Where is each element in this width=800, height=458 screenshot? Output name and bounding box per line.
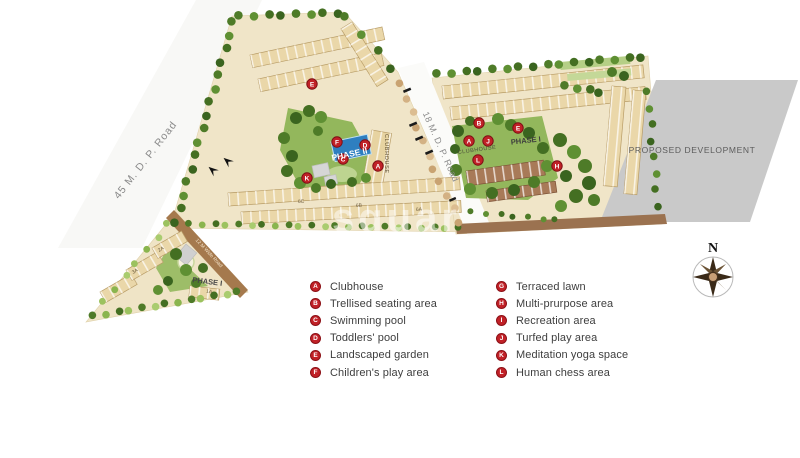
tree-icon — [161, 300, 169, 308]
tree-icon — [174, 299, 182, 307]
map-marker-letter: F — [335, 139, 339, 146]
tree-icon — [179, 192, 188, 201]
legend: A Clubhouse B Trellised seating area C S… — [310, 278, 628, 381]
tree-icon — [281, 165, 293, 177]
tree-icon — [156, 234, 163, 241]
tree-icon — [636, 53, 645, 62]
legend-marker-b-icon: B — [310, 298, 321, 309]
compass-north-label: N — [708, 241, 718, 256]
tree-icon — [585, 58, 594, 67]
tree-icon — [116, 308, 124, 316]
tree-icon — [276, 11, 285, 20]
tree-icon — [509, 214, 515, 220]
legend-marker-a-icon: A — [310, 281, 321, 292]
phase2-clubhouse-label: CLUBHOUSE — [383, 134, 389, 174]
tree-icon — [313, 126, 323, 136]
watermark: squar — [332, 196, 461, 240]
map-marker-letter: E — [310, 81, 315, 88]
tree-icon — [555, 200, 567, 212]
legend-item: G Terraced lawn — [496, 278, 628, 295]
tree-icon — [235, 221, 242, 228]
legend-marker-c-icon: C — [310, 315, 321, 326]
legend-item-label: Terraced lawn — [516, 281, 586, 293]
tree-icon — [278, 132, 290, 144]
tree-icon — [646, 105, 654, 113]
tree-icon — [204, 97, 213, 106]
tree-icon — [213, 220, 220, 227]
tree-icon — [386, 64, 395, 73]
tree-icon — [347, 177, 357, 187]
tree-icon — [131, 260, 138, 267]
tree-icon — [311, 183, 321, 193]
tree-icon — [651, 185, 659, 193]
tree-icon — [643, 88, 651, 96]
tree-icon — [249, 222, 256, 229]
tree-icon — [163, 220, 170, 227]
legend-column-2: G Terraced lawn H Multi-prurpose area I … — [496, 278, 628, 381]
tree-icon — [649, 120, 657, 128]
map-marker-letter: H — [555, 163, 560, 170]
tree-icon — [198, 263, 208, 273]
legend-item-label: Human chess area — [516, 367, 610, 379]
legend-marker-i-icon: I — [496, 315, 507, 326]
tree-icon — [340, 12, 349, 21]
tree-icon — [473, 67, 482, 76]
tree-icon — [191, 150, 200, 159]
map-marker-letter: J — [486, 138, 490, 145]
tree-icon — [573, 84, 582, 93]
tree-icon — [654, 203, 662, 211]
legend-item: D Toddlers' pool — [310, 330, 496, 347]
map-marker-letter: L — [476, 157, 480, 164]
tree-icon — [199, 222, 206, 229]
tree-icon — [177, 204, 186, 213]
tree-icon — [569, 189, 583, 203]
site-plan-page: EFDCAKBAJLEH 45 M. D. P. Road 18 M. D. P… — [0, 0, 800, 458]
tree-icon — [143, 246, 150, 253]
tree-icon — [170, 248, 182, 260]
tree-icon — [594, 88, 603, 97]
tree-icon — [326, 179, 336, 189]
tree-icon — [286, 150, 298, 162]
legend-item: K Meditation yoga space — [496, 347, 628, 364]
tree-icon — [211, 85, 220, 94]
tree-icon — [89, 312, 97, 320]
tree-icon — [163, 276, 173, 286]
tree-icon — [567, 145, 581, 159]
tree-icon — [653, 170, 661, 178]
tree-icon — [555, 60, 564, 69]
map-marker-letter: A — [467, 138, 472, 145]
legend-marker-f-icon: F — [310, 367, 321, 378]
legend-marker-g-icon: G — [496, 281, 507, 292]
legend-item: J Turfed play area — [496, 330, 628, 347]
legend-item-label: Swimming pool — [330, 315, 406, 327]
tree-icon — [170, 218, 179, 227]
tree-icon — [483, 211, 489, 217]
tree-icon — [225, 32, 234, 41]
tree-icon — [514, 62, 523, 71]
legend-item: L Human chess area — [496, 364, 628, 381]
tree-icon — [234, 11, 243, 20]
tree-icon — [193, 138, 202, 147]
tree-icon — [265, 10, 274, 19]
legend-item: A Clubhouse — [310, 278, 496, 295]
tree-icon — [447, 69, 456, 78]
tree-icon — [486, 187, 498, 199]
tree-icon — [214, 70, 223, 79]
tree-icon — [222, 222, 229, 229]
tree-icon — [499, 211, 505, 217]
map-marker-letter: K — [305, 175, 310, 182]
tree-icon — [452, 125, 464, 137]
tree-icon — [303, 105, 315, 117]
tree-icon — [435, 178, 443, 186]
compass-icon — [693, 257, 733, 297]
tree-icon — [607, 67, 617, 77]
tree-icon — [322, 223, 329, 230]
legend-item: I Recreation area — [496, 312, 628, 329]
legend-item: F Children's play area — [310, 364, 496, 381]
legend-marker-h-icon: H — [496, 298, 507, 309]
tree-icon — [290, 112, 302, 124]
tree-icon — [410, 108, 418, 116]
map-marker-letter: A — [376, 163, 381, 170]
legend-marker-l-icon: L — [496, 367, 507, 378]
tree-icon — [307, 10, 316, 19]
tree-icon — [588, 194, 600, 206]
tree-icon — [200, 124, 209, 133]
tree-icon — [258, 221, 265, 228]
tree-icon — [488, 65, 497, 74]
legend-item: E Landscaped garden — [310, 347, 496, 364]
tree-icon — [125, 307, 133, 315]
tree-icon — [227, 17, 236, 26]
tree-icon — [102, 311, 110, 319]
tree-icon — [582, 176, 596, 190]
tree-icon — [233, 288, 241, 296]
tree-icon — [570, 58, 579, 67]
tree-icon — [403, 95, 411, 103]
tree-icon — [111, 286, 118, 293]
tree-icon — [202, 112, 211, 121]
tree-icon — [124, 272, 131, 279]
legend-item-label: Recreation area — [516, 315, 596, 327]
legend-item: C Swimming pool — [310, 312, 496, 329]
legend-marker-d-icon: D — [310, 333, 321, 344]
tree-icon — [508, 184, 520, 196]
tree-icon — [197, 295, 205, 303]
legend-marker-k-icon: K — [496, 350, 507, 361]
tree-icon — [374, 46, 383, 55]
tree-icon — [529, 63, 538, 72]
legend-item: H Multi-prurpose area — [496, 295, 628, 312]
tree-icon — [551, 216, 557, 222]
tree-icon — [465, 116, 475, 126]
tree-icon — [180, 264, 192, 276]
legend-item: B Trellised seating area — [310, 295, 496, 312]
legend-item-label: Meditation yoga space — [516, 349, 628, 361]
tree-icon — [541, 216, 547, 222]
tree-icon — [586, 85, 595, 94]
tree-icon — [153, 285, 163, 295]
tree-icon — [626, 53, 635, 62]
tree-icon — [611, 56, 620, 65]
tree-icon — [553, 133, 567, 147]
tree-icon — [595, 55, 604, 64]
tree-icon — [528, 176, 540, 188]
legend-marker-j-icon: J — [496, 333, 507, 344]
tree-icon — [560, 170, 572, 182]
legend-item-label: Trellised seating area — [330, 298, 437, 310]
tree-icon — [318, 8, 327, 17]
tree-icon — [544, 60, 553, 69]
tree-icon — [295, 223, 302, 230]
tree-icon — [619, 71, 629, 81]
tree-icon — [315, 111, 327, 123]
map-marker-letter: E — [516, 125, 521, 132]
tree-icon — [182, 177, 191, 186]
tree-icon — [525, 214, 531, 220]
tree-icon — [286, 221, 293, 228]
map-marker-letter: B — [477, 120, 482, 127]
tree-icon — [152, 303, 160, 311]
tree-icon — [188, 296, 196, 304]
legend-item-label: Multi-prurpose area — [516, 298, 613, 310]
tree-icon — [361, 173, 371, 183]
tree-icon — [464, 183, 476, 195]
tree-icon — [503, 65, 512, 74]
tree-icon — [189, 165, 198, 174]
tree-icon — [537, 142, 549, 154]
legend-item-label: Clubhouse — [330, 281, 384, 293]
tree-icon — [224, 291, 232, 299]
legend-marker-e-icon: E — [310, 350, 321, 361]
site-map: EFDCAKBAJLEH 45 M. D. P. Road 18 M. D. P… — [0, 0, 800, 458]
legend-item-label: Turfed play area — [516, 332, 597, 344]
tree-icon — [99, 298, 106, 305]
legend-item-label: Toddlers' pool — [330, 332, 399, 344]
legend-item-label: Children's play area — [330, 367, 429, 379]
legend-column-1: A Clubhouse B Trellised seating area C S… — [310, 278, 496, 381]
tree-icon — [396, 80, 404, 88]
tree-icon — [463, 67, 472, 76]
tree-icon — [492, 113, 504, 125]
legend-item-label: Landscaped garden — [330, 349, 429, 361]
tree-icon — [292, 9, 301, 18]
tree-icon — [560, 81, 569, 90]
building-label-6c: 6C — [298, 199, 305, 205]
tree-icon — [357, 30, 366, 39]
tree-icon — [578, 159, 592, 173]
proposed-development-label: PROPOSED DEVELOPMENT — [629, 145, 756, 155]
tree-icon — [272, 223, 279, 230]
tree-icon — [216, 58, 225, 67]
tree-icon — [308, 222, 315, 229]
tree-icon — [467, 208, 473, 214]
tree-icon — [432, 69, 441, 78]
tree-icon — [250, 12, 259, 21]
tree-icon — [429, 166, 437, 174]
tree-icon — [223, 44, 232, 53]
tree-icon — [138, 304, 146, 312]
tree-icon — [541, 160, 553, 172]
tree-icon — [185, 220, 192, 227]
